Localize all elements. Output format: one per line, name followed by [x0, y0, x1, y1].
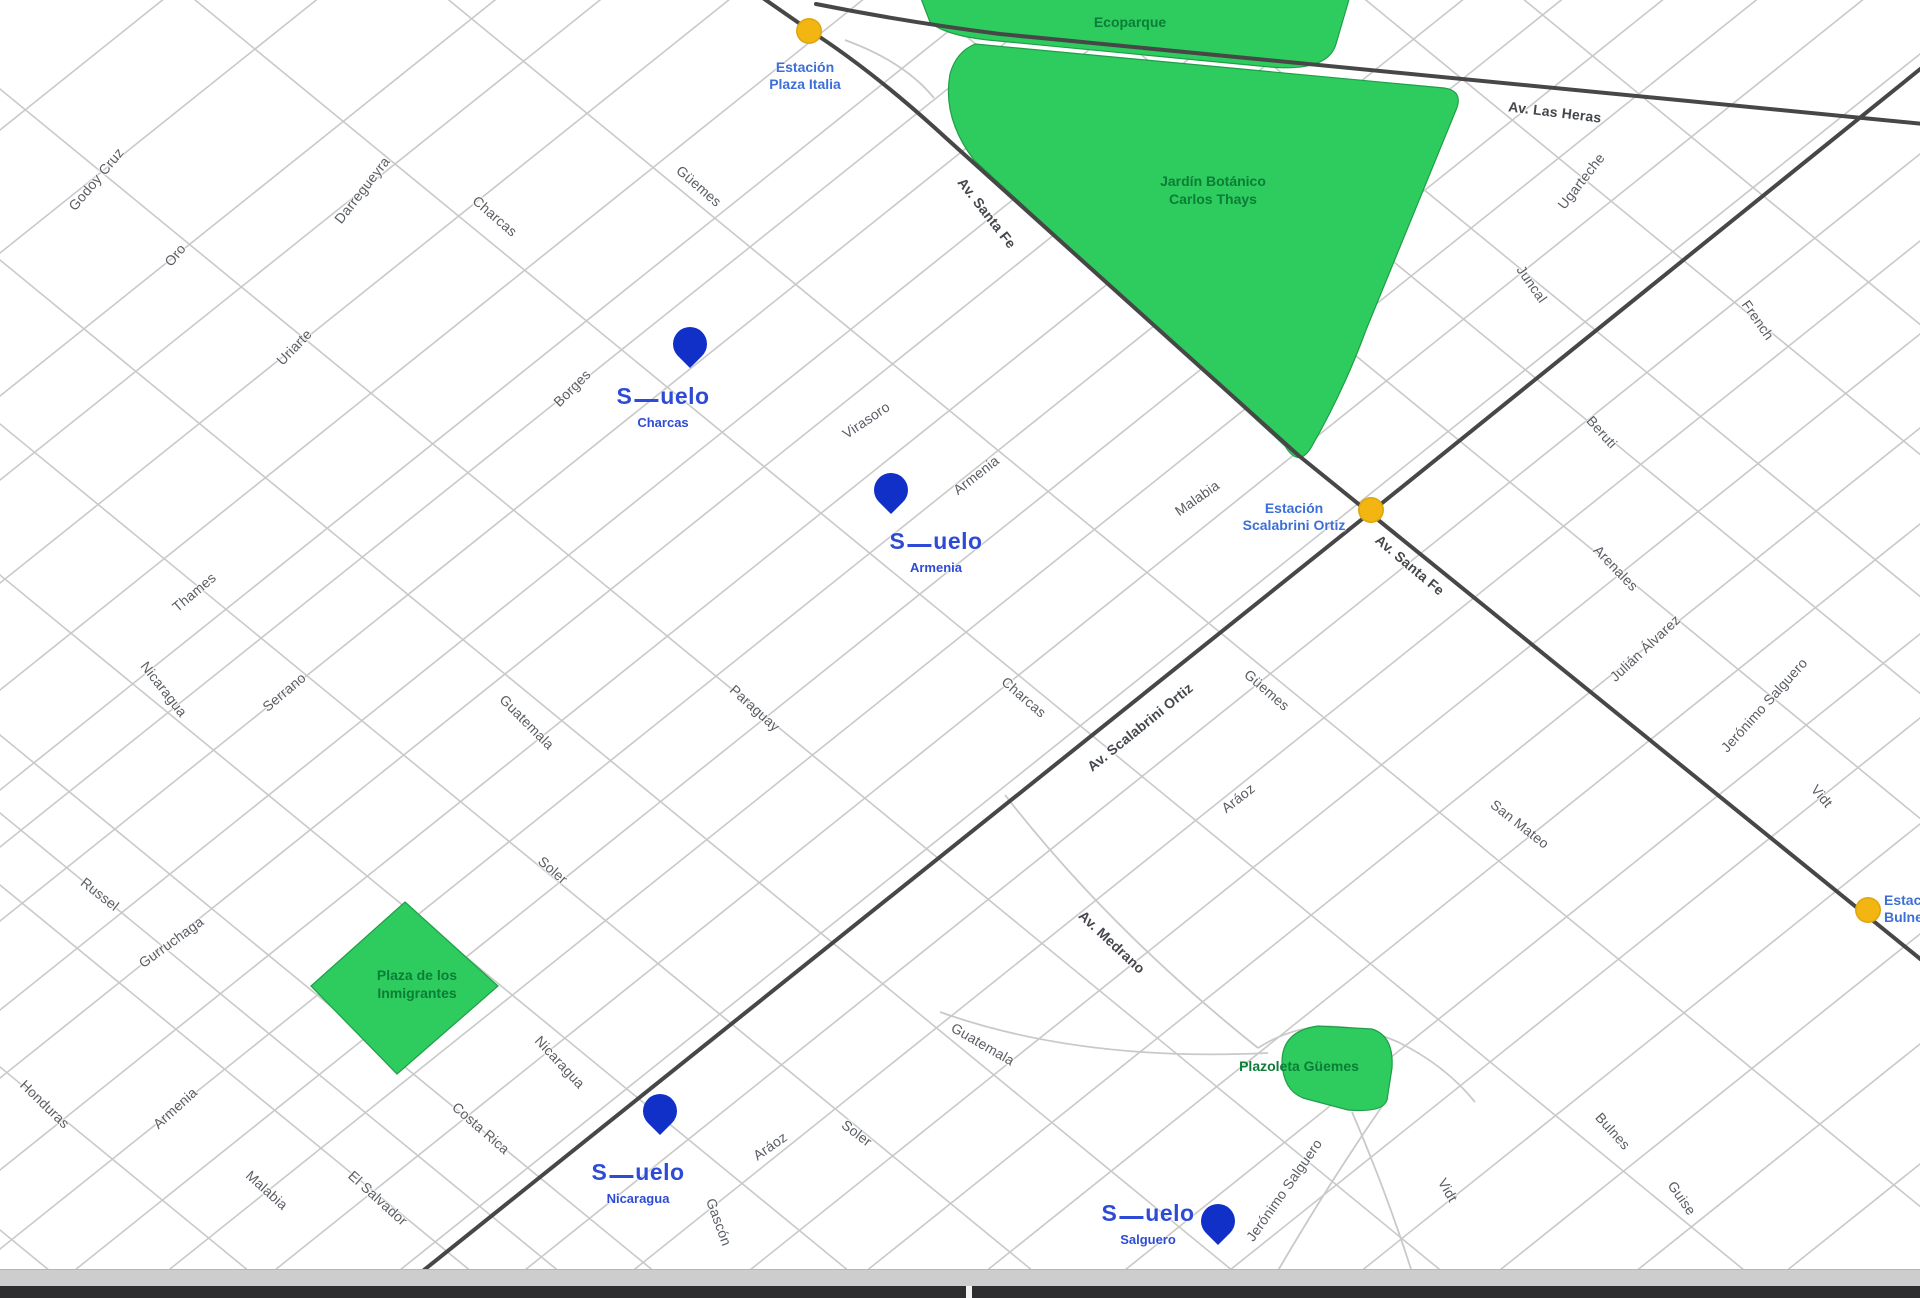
suelo-pin-label-charcas: SueloCharcas: [616, 385, 709, 429]
suelo-pin-label-salguero: SueloSalguero: [1101, 1202, 1194, 1246]
suelo-pin-label-nicaragua: SueloNicaragua: [591, 1161, 684, 1205]
suelo-pin-sublabel-nicaragua: Nicaragua: [591, 1192, 684, 1205]
taskbar[interactable]: [0, 1286, 1920, 1298]
taskbar-divider: [966, 1286, 972, 1298]
park-label-plazoleta-guemes: Plazoleta Güemes: [1239, 1057, 1359, 1075]
suelo-logo: Suelo: [616, 385, 709, 408]
suelo-pin-sublabel-armenia: Armenia: [889, 561, 982, 574]
horizontal-scrollbar[interactable]: [0, 1269, 1920, 1286]
station-dot-bulnes[interactable]: [1857, 899, 1880, 922]
station-label-scalabrini-ortiz: EstaciónScalabrini Ortiz: [1243, 500, 1346, 534]
park-label-ecoparque: Ecoparque: [1094, 13, 1166, 31]
station-dot-plaza-italia[interactable]: [798, 20, 821, 43]
suelo-logo: Suelo: [889, 530, 982, 553]
map-canvas[interactable]: Godoy CruzOroDarregueyraUriarteCharcasGü…: [0, 0, 1920, 1298]
suelo-logo-bridge: [634, 399, 658, 402]
suelo-pin-label-armenia: SueloArmenia: [889, 530, 982, 574]
park-label-jardin-botanico-carlos-thays: Jardín BotánicoCarlos Thays: [1160, 172, 1266, 208]
suelo-logo-bridge: [1119, 1216, 1143, 1219]
suelo-pin-sublabel-salguero: Salguero: [1101, 1233, 1194, 1246]
station-label-bulnes: EstaciónBulnes: [1884, 892, 1920, 926]
suelo-pin-sublabel-charcas: Charcas: [616, 416, 709, 429]
park-jardin-botanico-shape: [948, 44, 1458, 458]
station-dot-scalabrini-ortiz[interactable]: [1360, 499, 1383, 522]
park-label-plaza-de-los-inmigrantes: Plaza de losInmigrantes: [377, 966, 457, 1002]
suelo-logo-bridge: [609, 1175, 633, 1178]
suelo-logo-bridge: [907, 544, 931, 547]
suelo-logo: Suelo: [591, 1161, 684, 1184]
road-av-medrano: [1005, 795, 1258, 1048]
suelo-logo: Suelo: [1101, 1202, 1194, 1225]
station-label-plaza-italia: EstaciónPlaza Italia: [769, 59, 841, 93]
